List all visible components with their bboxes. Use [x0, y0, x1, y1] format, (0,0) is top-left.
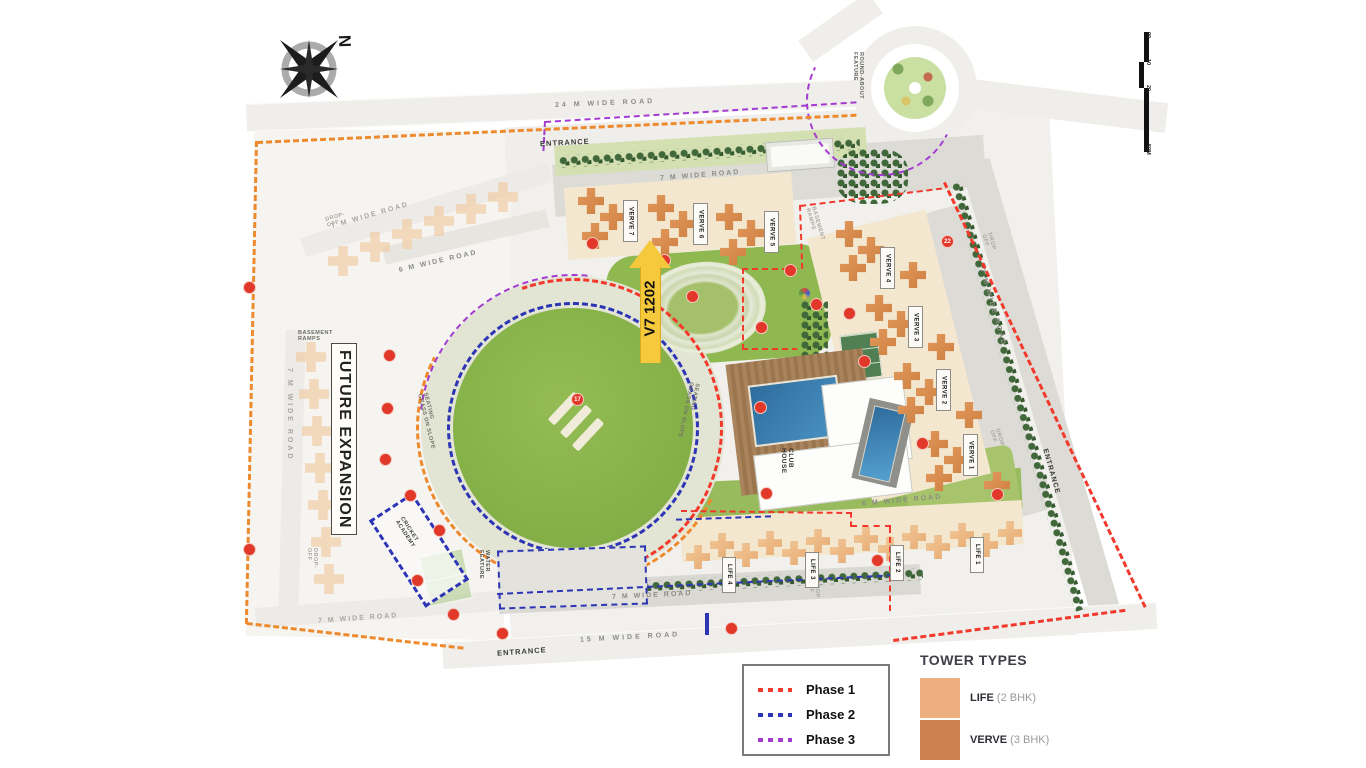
tower-type-verve: VERVE (3 BHK) — [920, 720, 1049, 760]
scale-segment — [1139, 62, 1144, 88]
future-expansion-label: FUTURE EXPANSION — [331, 343, 357, 535]
phase1-amphitheatre-boundary — [742, 268, 798, 350]
water-feature-label: WATER FEATURE — [478, 550, 490, 579]
verve-name: VERVE — [970, 734, 1007, 746]
site-marker — [243, 543, 256, 556]
phase3-dash-swatch — [758, 738, 792, 742]
tower-types-title: TOWER TYPES — [920, 652, 1100, 668]
site-marker — [725, 622, 738, 635]
tower-label-life3: LIFE 3 — [805, 552, 819, 588]
tower-label-verve4: VERVE 4 — [880, 247, 895, 289]
site-marker — [586, 237, 599, 250]
site-marker-right-road: 22 — [941, 235, 954, 248]
tower-label-verve7: VERVE 7 — [623, 200, 638, 242]
site-marker — [379, 453, 392, 466]
site-marker-pitch: 17 — [571, 393, 584, 406]
tower-label-verve1: VERVE 1 — [963, 434, 978, 476]
site-marker — [381, 402, 394, 415]
site-marker — [496, 627, 509, 640]
site-marker — [383, 349, 396, 362]
phase2-entry-tick — [705, 613, 709, 635]
scale-tick-label: 20 — [1145, 85, 1151, 91]
verve-desc: (3 BHK) — [1010, 734, 1049, 746]
road-label-left-vert: 7 M WIDE ROAD — [286, 368, 293, 461]
phase1-south-jog2 — [850, 512, 852, 527]
tower-label-verve6: VERVE 6 — [693, 203, 708, 245]
phase-legend: Phase 1 Phase 2 Phase 3 — [742, 664, 890, 756]
verve-swatch — [920, 720, 960, 760]
phase3-label: Phase 3 — [806, 732, 855, 747]
legend-row-phase1: Phase 1 — [758, 682, 855, 697]
tower-label-life4: LIFE 4 — [722, 557, 736, 593]
site-marker — [916, 437, 929, 450]
phase2-label: Phase 2 — [806, 707, 855, 722]
tower-label-verve2: VERVE 2 — [936, 369, 951, 411]
phase1-south-jog — [851, 525, 891, 527]
site-marker — [411, 574, 424, 587]
scale-segment — [1144, 88, 1149, 152]
phase1-label: Phase 1 — [806, 682, 855, 697]
life-desc: (2 BHK) — [997, 692, 1036, 704]
compass-rose-icon: N — [262, 22, 358, 118]
scale-tick-label: 50M — [1145, 144, 1151, 155]
round-about-label: ROUND-ABOUT FEATURE — [852, 52, 864, 99]
site-marker — [784, 264, 797, 277]
site-marker — [871, 554, 884, 567]
tower-label-verve3: VERVE 3 — [908, 306, 923, 348]
unit-highlight-label: V7 1202 — [642, 263, 659, 355]
site-master-plan: VERVE 7 VERVE 6 VERVE 5 VERVE 4 VERVE 3 … — [0, 0, 1366, 768]
site-marker — [243, 281, 256, 294]
site-marker — [447, 608, 460, 621]
phase2-dash-swatch — [758, 713, 792, 717]
basement-ramps-label: BASEMENT RAMPS — [298, 330, 333, 342]
compass-north-label: N — [335, 35, 354, 48]
scale-tick-label: 00 — [1145, 32, 1151, 38]
tower-type-life: LIFE (2 BHK) — [920, 678, 1036, 718]
site-marker — [433, 524, 446, 537]
life-swatch — [920, 678, 960, 718]
compass: N — [262, 22, 358, 123]
site-marker — [991, 488, 1004, 501]
site-marker — [404, 489, 417, 502]
playground-carousel — [799, 288, 810, 299]
tower-types-legend: TOWER TYPES LIFE (2 BHK) VERVE (3 BHK) — [920, 652, 1100, 762]
drop-off-label: DROP- OFF — [306, 548, 318, 568]
tower-label-life2: LIFE 2 — [890, 545, 904, 581]
site-marker — [858, 355, 871, 368]
site-marker — [843, 307, 856, 320]
club-house-label: CLUB HOUSE — [780, 448, 794, 474]
site-marker — [686, 290, 699, 303]
legend-row-phase3: Phase 3 — [758, 732, 855, 747]
tower-label-verve5: VERVE 5 — [764, 211, 779, 253]
legend-row-phase2: Phase 2 — [758, 707, 855, 722]
site-marker — [810, 298, 823, 311]
phase1-dash-swatch — [758, 688, 792, 692]
scale-bar: 00 10 20 50M — [1138, 32, 1158, 157]
tower-label-life1: LIFE 1 — [970, 537, 984, 573]
scale-tick-label: 10 — [1145, 59, 1151, 65]
site-marker — [754, 401, 767, 414]
site-marker — [760, 487, 773, 500]
site-marker — [755, 321, 768, 334]
life-name: LIFE — [970, 692, 994, 704]
